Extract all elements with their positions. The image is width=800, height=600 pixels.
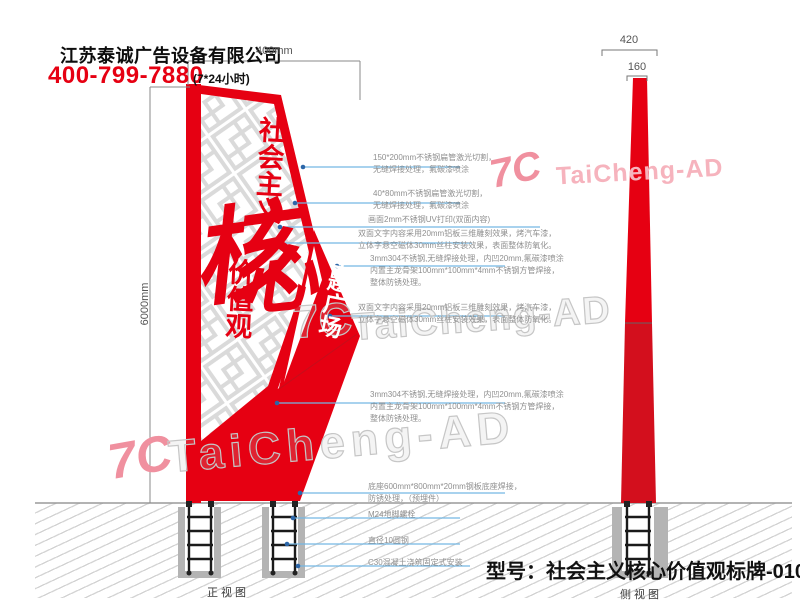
material-annotation: C30混凝土浇筑固定式安装 [368, 557, 463, 569]
material-annotation: 画面2mm不锈钢UV打印(双面内容) [368, 214, 490, 226]
dim-front-width: 400mm [256, 45, 293, 57]
material-annotation: 150*200mm不锈钢扁管激光切割， 无缝焊接处理，氟碳漆喷涂 [373, 152, 496, 176]
dim-side-top-width: 160 [617, 61, 657, 73]
dim-side-bottom-width: 420 [609, 34, 649, 46]
material-annotation: 40*80mm不锈钢扁管激光切割， 无缝焊接处理，氟碳漆喷涂 [373, 188, 487, 212]
material-annotation: 3mm304不锈钢,无缝焊接处理，内凹20mm,氟碳漆喷涂 内置主龙骨架100m… [370, 389, 564, 425]
sign-slogan-bottom: 价值观 [217, 257, 257, 369]
taicheng-logo-watermark: 7C [103, 423, 176, 491]
material-annotation: 底座600mm*800mm*20mm钢板底座焊接， 防锈处理，（预埋件） [368, 481, 522, 505]
front-view-label: 正视图 [207, 584, 249, 600]
side-view-pole [621, 78, 656, 503]
service-hours: (7*24小时) [193, 70, 250, 87]
material-annotation: 3mm304不锈钢,无缝焊接处理，内凹20mm,氟碳漆喷涂 内置主龙骨架100m… [370, 253, 564, 289]
dim-front-height: 6000mm [139, 281, 151, 327]
blueprint-canvas: 7C TaiCheng-AD 7C TaiCheng-AD 7C TaiChen… [0, 0, 800, 600]
material-annotation: 双面文字内容采用20mm铝板三维雕刻效果，烤汽车漆， 立体字悬空磁体30mm丝柱… [358, 228, 556, 252]
side-view-label: 侧视图 [620, 586, 662, 600]
material-annotation: 双面文字内容采用20mm铝板三维雕刻效果，烤汽车漆， 立体字悬空磁体30mm丝柱… [358, 302, 556, 326]
model-number: 型号：社会主义核心价值观标牌-0101 [486, 555, 800, 584]
material-annotation: 直径10圆钢 [368, 535, 409, 547]
hotline-phone: 400-799-7880 [48, 62, 203, 90]
material-annotation: M24地脚螺栓 [368, 509, 416, 521]
